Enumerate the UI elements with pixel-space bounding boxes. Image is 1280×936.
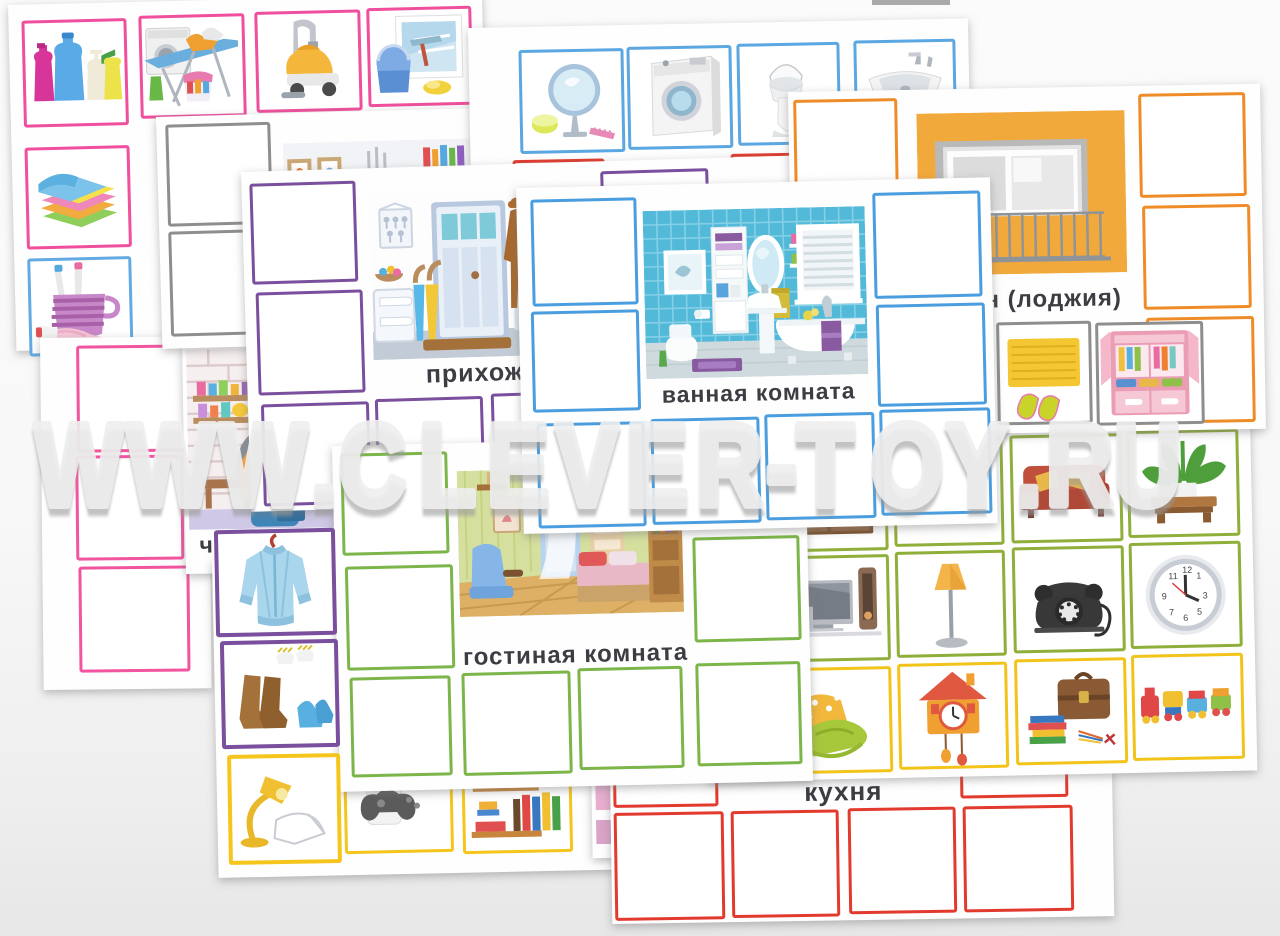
svg-text:9: 9 [1162, 591, 1167, 601]
svg-text:7: 7 [1169, 607, 1174, 617]
svg-text:6: 6 [1183, 613, 1188, 623]
svg-text:12: 12 [1182, 565, 1192, 575]
svg-text:5: 5 [1197, 607, 1202, 617]
svg-text:3: 3 [1203, 590, 1208, 600]
svg-text:11: 11 [1168, 571, 1178, 581]
svg-text:1: 1 [1196, 571, 1201, 581]
